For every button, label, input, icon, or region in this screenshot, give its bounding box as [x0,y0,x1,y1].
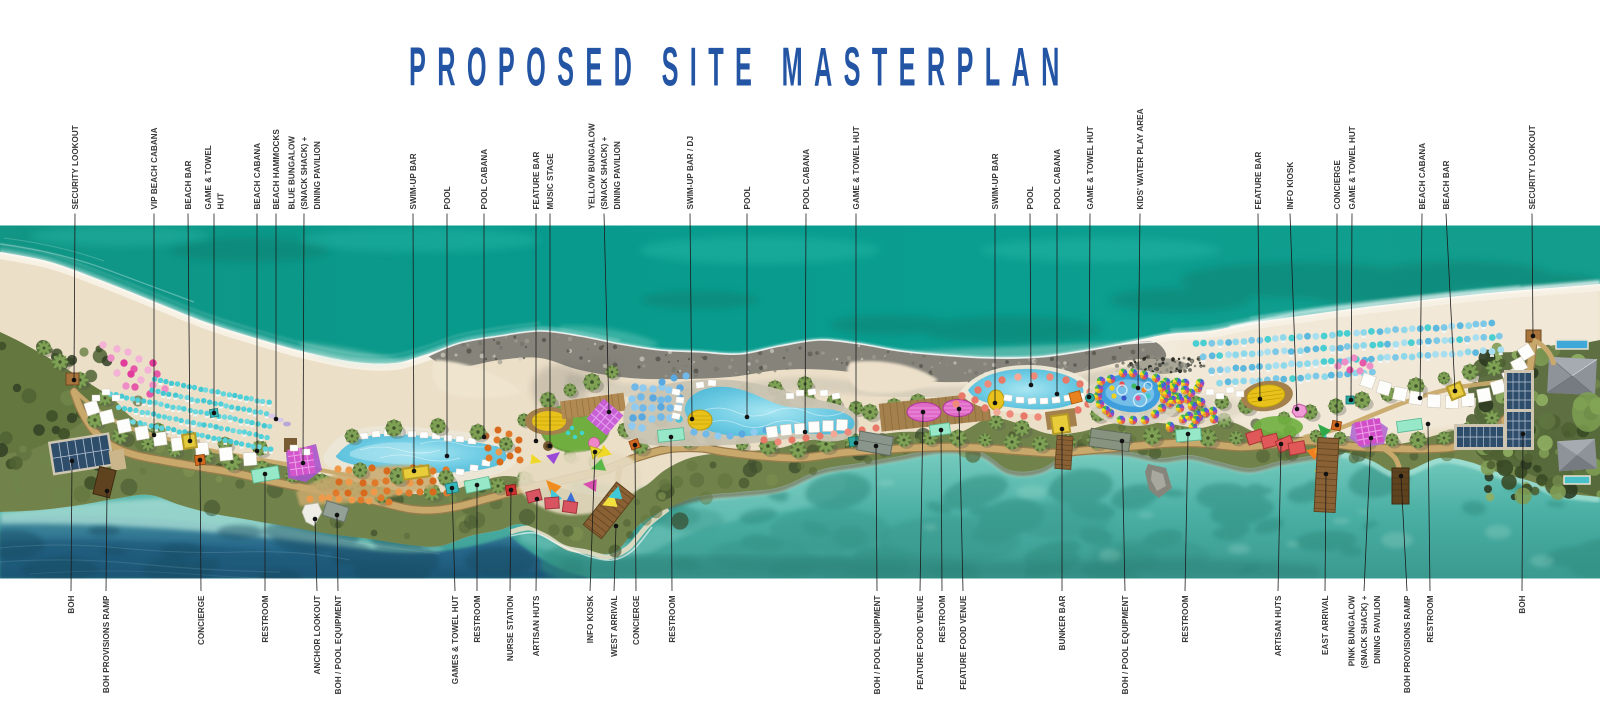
svg-text:DINING PAVILION: DINING PAVILION [1373,595,1382,663]
svg-text:SECURITY LOOKOUT: SECURITY LOOKOUT [1528,125,1537,209]
svg-text:BOH / POOL EQUIPMENT: BOH / POOL EQUIPMENT [334,596,343,695]
svg-text:PROPOSED SITE MASTERPLAN: PROPOSED SITE MASTERPLAN [409,37,1070,99]
svg-text:POOL CABANA: POOL CABANA [480,149,489,210]
svg-text:SWIM-UP BAR: SWIM-UP BAR [991,153,1000,209]
svg-text:RESTROOM: RESTROOM [1181,595,1190,642]
svg-text:BOH PROVISIONS RAMP: BOH PROVISIONS RAMP [1403,595,1412,693]
svg-text:BEACH BAR: BEACH BAR [184,160,193,209]
svg-text:DINING PAVILION: DINING PAVILION [613,141,622,209]
svg-text:BEACH HAMMOCKS: BEACH HAMMOCKS [272,129,281,210]
svg-text:GAME & TOWEL: GAME & TOWEL [204,145,213,209]
svg-text:GAME & TOWEL HUT: GAME & TOWEL HUT [1086,126,1095,209]
svg-text:SWIM-UP BAR / DJ: SWIM-UP BAR / DJ [686,136,695,210]
svg-text:CONCIERGE: CONCIERGE [1333,159,1342,209]
svg-text:NURSE STATION: NURSE STATION [506,595,515,661]
svg-text:ARTISAN HUTS: ARTISAN HUTS [532,595,541,656]
svg-text:BOH: BOH [67,595,76,613]
svg-text:CONCIERGE: CONCIERGE [197,595,206,645]
svg-text:WEST ARRIVAL: WEST ARRIVAL [610,596,619,657]
svg-text:GAME & TOWEL HUT: GAME & TOWEL HUT [852,126,861,209]
svg-text:(SNACK SHACK) +: (SNACK SHACK) + [1360,595,1369,668]
svg-text:PINK BUNGALOW: PINK BUNGALOW [1348,595,1357,666]
svg-text:RESTROOM: RESTROOM [261,595,270,642]
svg-text:BOH PROVISIONS RAMP: BOH PROVISIONS RAMP [102,595,111,693]
svg-text:SECURITY LOOKOUT: SECURITY LOOKOUT [71,125,80,209]
svg-text:POOL: POOL [443,186,452,209]
svg-text:BOH: BOH [1518,595,1527,613]
svg-text:HUT: HUT [217,193,226,210]
svg-text:EAST ARRIVAL: EAST ARRIVAL [1321,596,1330,656]
svg-text:CONCIERGE: CONCIERGE [632,595,641,645]
svg-text:GAME & TOWEL HUT: GAME & TOWEL HUT [1348,126,1357,209]
svg-text:INFO KIOSK: INFO KIOSK [1286,162,1295,210]
svg-text:VIP BEACH CABANA: VIP BEACH CABANA [150,127,159,209]
svg-text:(SNACK SHACK) +: (SNACK SHACK) + [600,136,609,209]
svg-text:ARTISAN HUTS: ARTISAN HUTS [1274,595,1283,656]
svg-text:FEATURE FOOD VENUE: FEATURE FOOD VENUE [916,595,925,690]
svg-text:DINING PAVILION: DINING PAVILION [313,141,322,209]
svg-text:FEATURE BAR: FEATURE BAR [532,151,541,209]
svg-text:(SNACK SHACK) +: (SNACK SHACK) + [300,136,309,209]
svg-text:BEACH BAR: BEACH BAR [1442,160,1451,209]
svg-text:BLUE BUNGALOW: BLUE BUNGALOW [288,136,297,210]
svg-text:BEACH CABANA: BEACH CABANA [253,143,262,210]
svg-text:KIDS' WATER PLAY AREA: KIDS' WATER PLAY AREA [1136,108,1145,209]
svg-text:RESTROOM: RESTROOM [473,595,482,642]
svg-text:RESTROOM: RESTROOM [1426,595,1435,642]
svg-text:FEATURE FOOD VENUE: FEATURE FOOD VENUE [959,595,968,690]
svg-text:POOL: POOL [743,186,752,209]
svg-text:INFO KIOSK: INFO KIOSK [586,595,595,643]
svg-text:ANCHOR LOOKOUT: ANCHOR LOOKOUT [313,595,322,674]
svg-text:POOL CABANA: POOL CABANA [802,149,811,210]
svg-text:POOL: POOL [1026,186,1035,209]
svg-text:BOH / POOL EQUIPMENT: BOH / POOL EQUIPMENT [873,596,882,695]
svg-text:MUSIC STAGE: MUSIC STAGE [546,153,555,210]
svg-text:FEATURE BAR: FEATURE BAR [1254,151,1263,209]
svg-text:POOL CABANA: POOL CABANA [1053,149,1062,210]
svg-text:BOH / POOL EQUIPMENT: BOH / POOL EQUIPMENT [1121,596,1130,695]
svg-text:RESTROOM: RESTROOM [938,595,947,642]
svg-text:YELLOW BUNGALOW: YELLOW BUNGALOW [588,123,597,209]
svg-text:RESTROOM: RESTROOM [668,595,677,642]
svg-text:SWIM-UP BAR: SWIM-UP BAR [409,153,418,209]
svg-text:GAMES & TOWEL HUT: GAMES & TOWEL HUT [451,595,460,684]
svg-text:BUNKER BAR: BUNKER BAR [1058,595,1067,650]
svg-text:BEACH CABANA: BEACH CABANA [1418,143,1427,210]
